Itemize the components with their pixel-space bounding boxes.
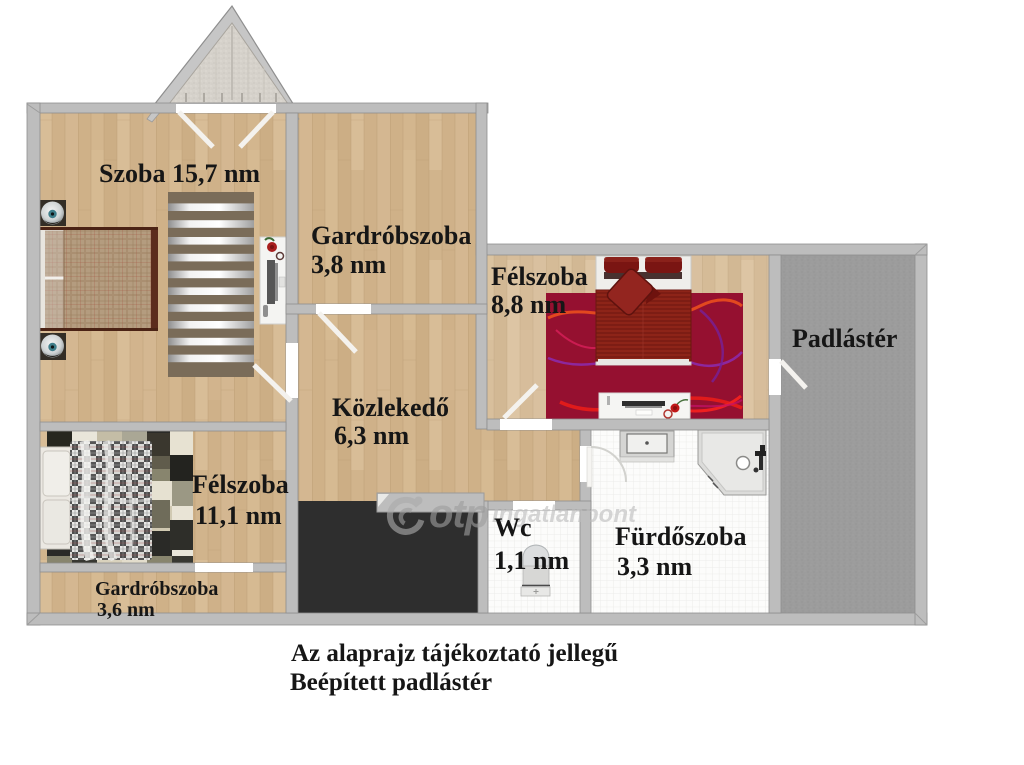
svg-text:Padlástér: Padlástér [792,324,897,353]
svg-text:Szoba 15,7 nm: Szoba 15,7 nm [99,159,260,188]
svg-text:otp: otp [429,492,489,536]
svg-text:Beépített padlástér: Beépített padlástér [290,669,492,696]
svg-text:Az alaprajz tájékoztató jelleg: Az alaprajz tájékoztató jellegű [291,640,618,667]
